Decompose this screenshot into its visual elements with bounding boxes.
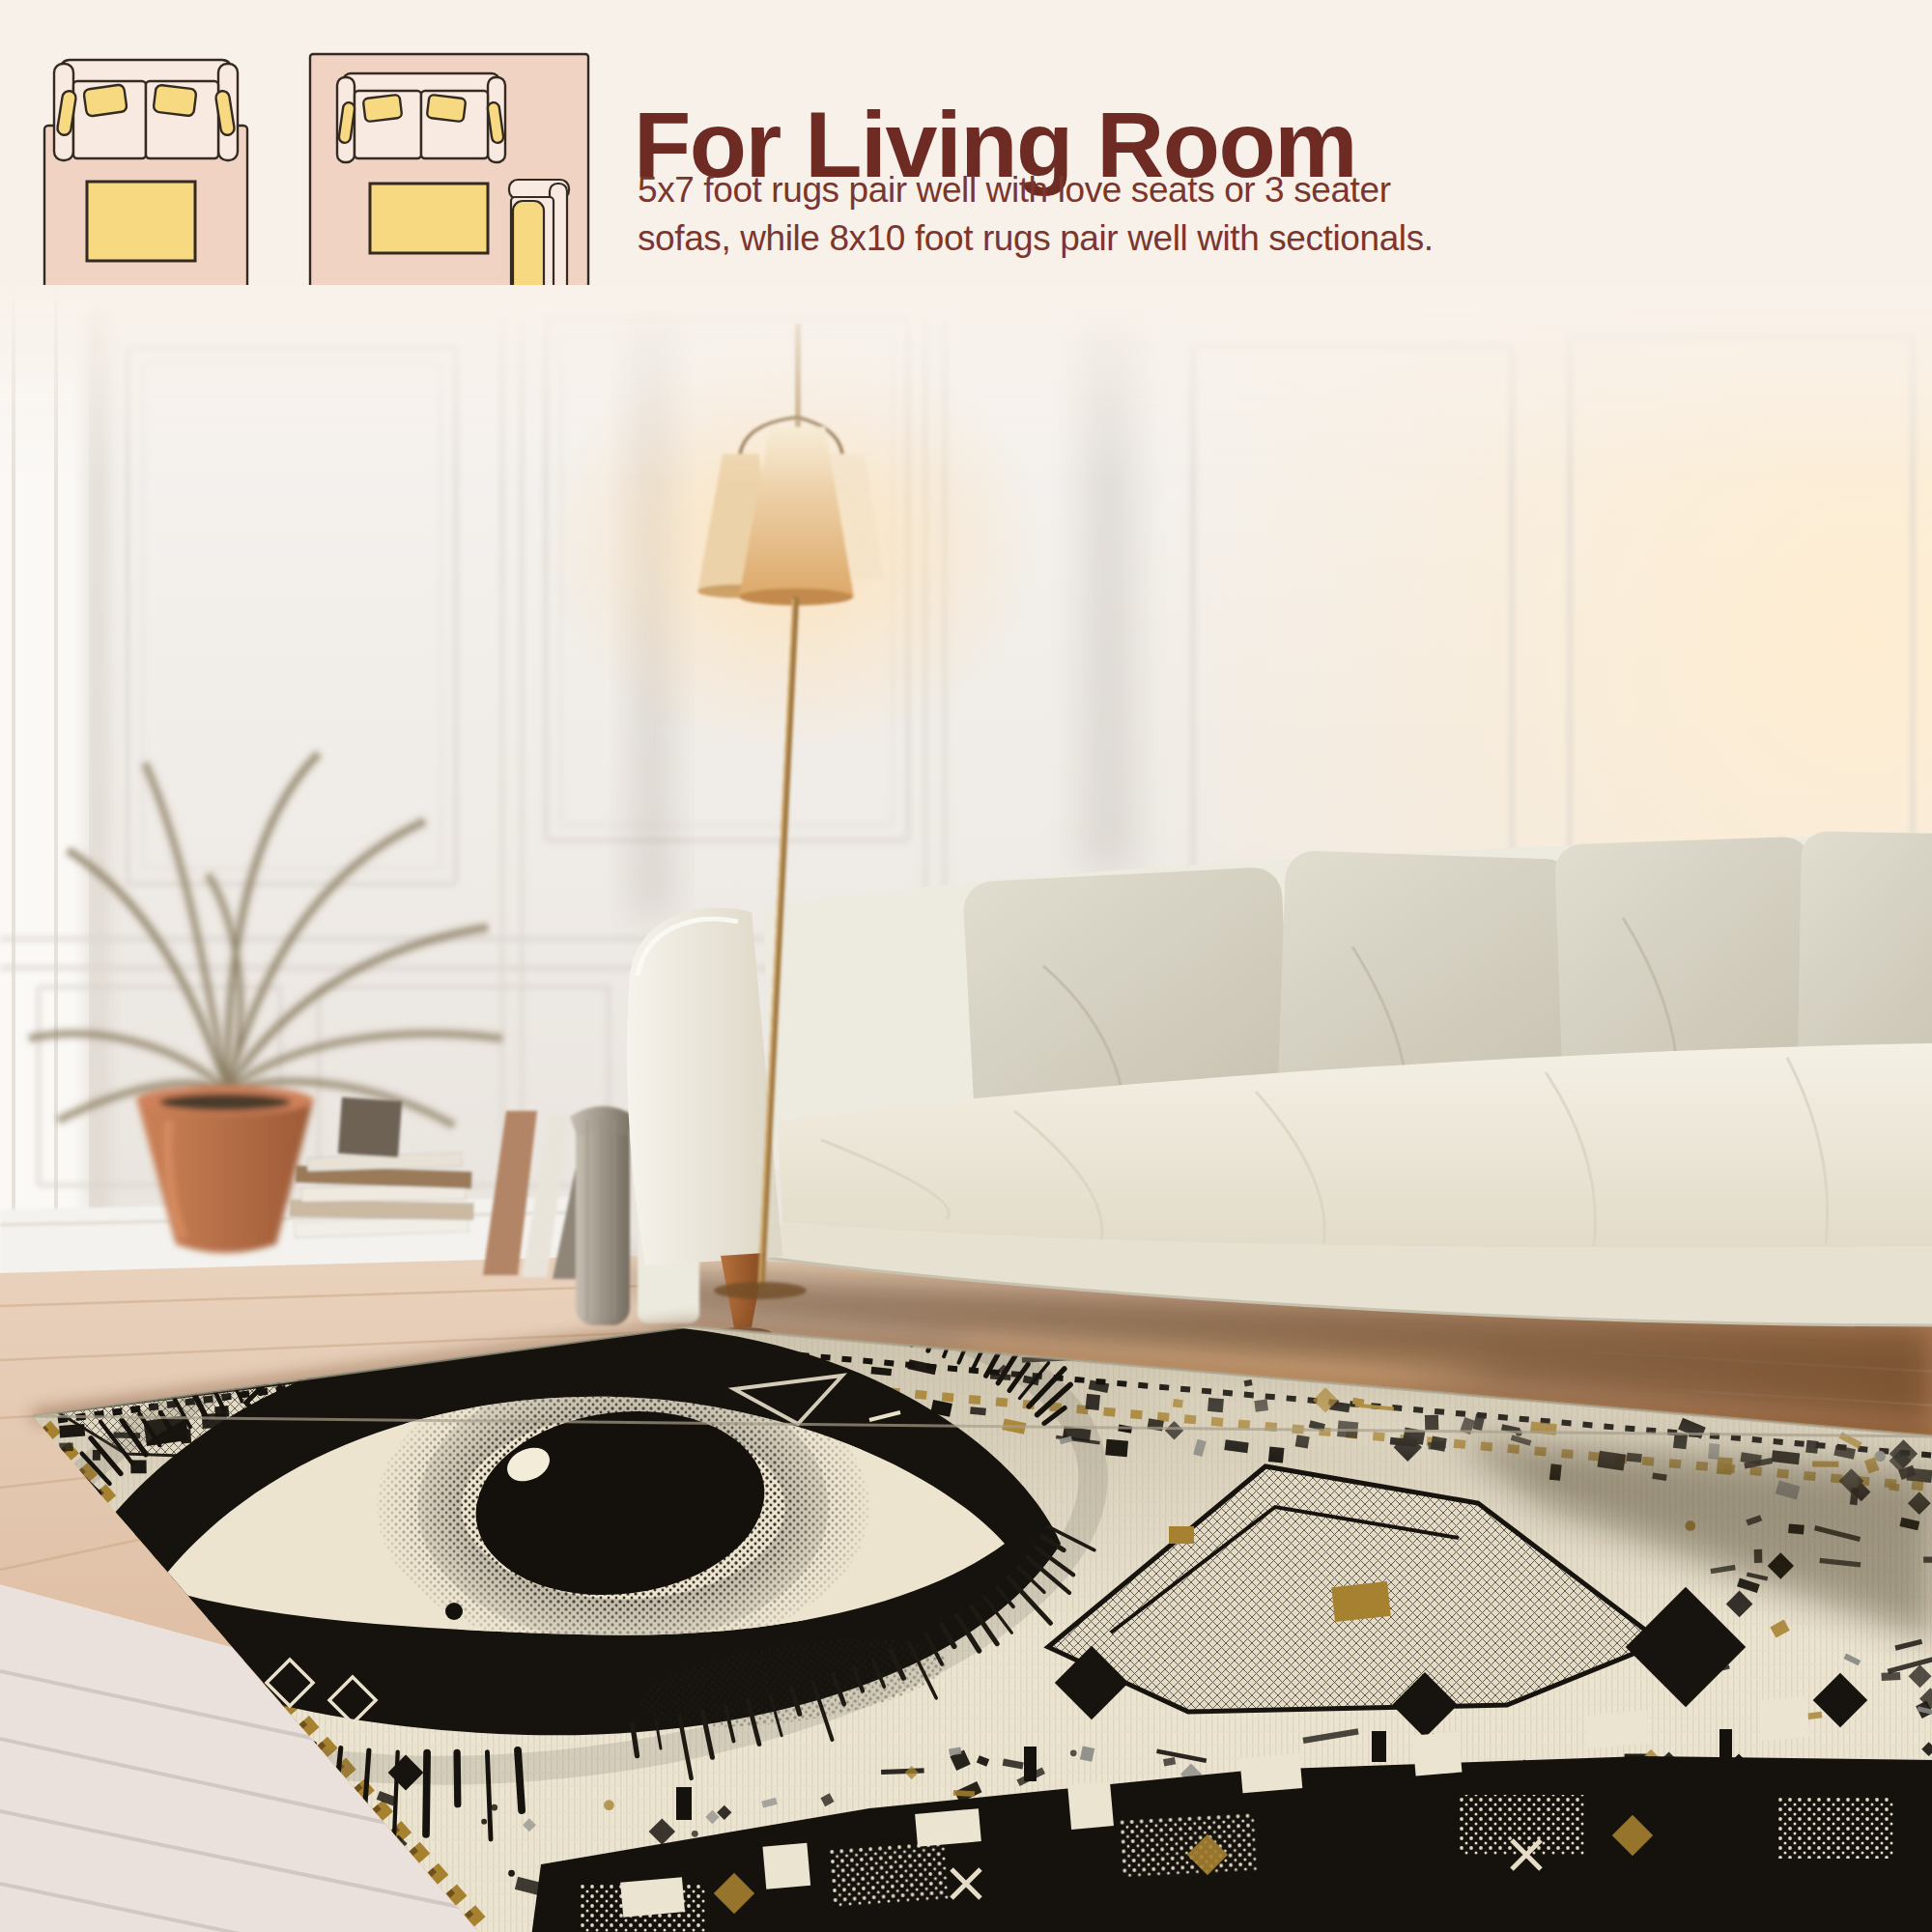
sofa-top-view-icon (337, 73, 505, 162)
loveseat-top-view-icon (54, 60, 238, 160)
fluted-vase (570, 1106, 636, 1325)
product-infographic: 5x7 8x10 For Living Room 5x7 foot rugs p… (0, 0, 1932, 1932)
photo-top-fade (0, 285, 1932, 488)
page-description: 5x7 foot rugs pair well with love seats … (638, 166, 1434, 263)
coffee-table-icon (87, 182, 195, 261)
description-line-2: sofas, while 8x10 foot rugs pair well wi… (638, 214, 1434, 263)
white-sofa (627, 831, 1932, 1339)
coffee-table-icon (370, 184, 488, 253)
small-sculpture (338, 1097, 402, 1157)
rug-size-diagram-5x7 (27, 27, 264, 327)
description-line-1: 5x7 foot rugs pair well with love seats … (638, 166, 1434, 214)
lamp-base (714, 1282, 807, 1299)
living-room-photo (0, 285, 1932, 1932)
